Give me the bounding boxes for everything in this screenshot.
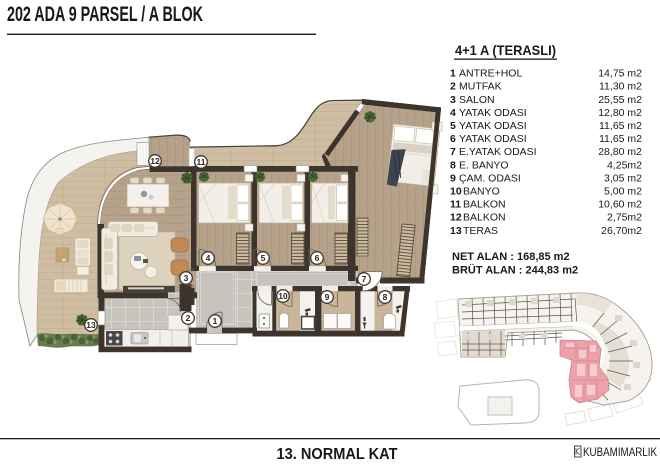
svg-text:11: 11	[197, 157, 206, 167]
svg-text:ANTRE+HOL: ANTRE+HOL	[459, 68, 522, 80]
svg-text:10,60 m2: 10,60 m2	[598, 199, 642, 211]
svg-text:25,55 m2: 25,55 m2	[598, 94, 642, 106]
svg-text:YATAK ODASI: YATAK ODASI	[459, 133, 527, 145]
svg-text:12,80 m2: 12,80 m2	[598, 107, 642, 119]
svg-text:E. BANYO: E. BANYO	[459, 159, 509, 171]
svg-text:10: 10	[278, 291, 288, 301]
svg-text:KUBAMIMARLIK: KUBAMIMARLIK	[583, 447, 657, 459]
svg-text:BANYO: BANYO	[463, 186, 500, 198]
svg-text:YATAK ODASI: YATAK ODASI	[459, 120, 527, 132]
svg-text:7: 7	[362, 274, 367, 284]
svg-text:1: 1	[450, 68, 456, 80]
svg-text:28,80 m2: 28,80 m2	[598, 146, 642, 158]
svg-text:11: 11	[450, 199, 461, 211]
svg-text:4: 4	[450, 107, 456, 119]
svg-text:10: 10	[450, 186, 462, 198]
svg-text:NET ALAN : 168,85 m2: NET ALAN : 168,85 m2	[452, 251, 570, 263]
svg-text:BALKON: BALKON	[463, 212, 506, 224]
svg-text:7: 7	[450, 146, 456, 158]
svg-text:MUTFAK: MUTFAK	[459, 81, 502, 93]
svg-text:SALON: SALON	[459, 94, 495, 106]
svg-text:26,70m2: 26,70m2	[601, 225, 642, 237]
svg-text:6: 6	[450, 133, 456, 145]
svg-text:4: 4	[206, 253, 211, 263]
svg-text:11,65 m2: 11,65 m2	[599, 120, 642, 132]
svg-text:1: 1	[213, 316, 218, 326]
svg-text:YATAK ODASI: YATAK ODASI	[459, 107, 527, 119]
svg-text:12: 12	[450, 212, 462, 224]
svg-text:TERAS: TERAS	[463, 225, 498, 237]
svg-text:5: 5	[261, 253, 266, 263]
svg-text:3,05 m2: 3,05 m2	[604, 172, 642, 184]
svg-text:E.YATAK ODASI: E.YATAK ODASI	[459, 146, 537, 158]
svg-text:8: 8	[450, 159, 456, 171]
svg-text:5: 5	[450, 120, 456, 132]
svg-text:14,75 m2: 14,75 m2	[598, 68, 642, 80]
svg-text:12: 12	[150, 156, 160, 166]
svg-text:13. NORMAL KAT: 13. NORMAL KAT	[277, 446, 398, 463]
svg-text:6: 6	[315, 253, 320, 263]
svg-text:2: 2	[450, 81, 456, 93]
svg-text:13: 13	[86, 320, 96, 330]
svg-text:ÇAM. ODASI: ÇAM. ODASI	[459, 172, 521, 184]
svg-text:BALKON: BALKON	[463, 199, 506, 211]
svg-text:4+1 A (TERASLI): 4+1 A (TERASLI)	[455, 42, 556, 58]
svg-text:9: 9	[450, 172, 456, 184]
svg-text:13: 13	[450, 225, 462, 237]
svg-text:9: 9	[325, 292, 330, 302]
svg-text:BRÜT ALAN : 244,83 m2: BRÜT ALAN : 244,83 m2	[452, 264, 578, 277]
svg-text:4,25m2: 4,25m2	[607, 159, 642, 171]
svg-text:3: 3	[184, 273, 189, 283]
svg-text:3: 3	[450, 94, 456, 106]
svg-text:2,75m2: 2,75m2	[607, 212, 642, 224]
svg-text:2: 2	[186, 313, 191, 323]
svg-text:202 ADA 9 PARSEL / A BLOK: 202 ADA 9 PARSEL / A BLOK	[7, 3, 203, 26]
svg-text:11,65 m2: 11,65 m2	[599, 133, 642, 145]
svg-text:11,30 m2: 11,30 m2	[599, 81, 642, 93]
svg-text:5,00 m2: 5,00 m2	[604, 186, 642, 198]
svg-text:8: 8	[383, 292, 388, 302]
